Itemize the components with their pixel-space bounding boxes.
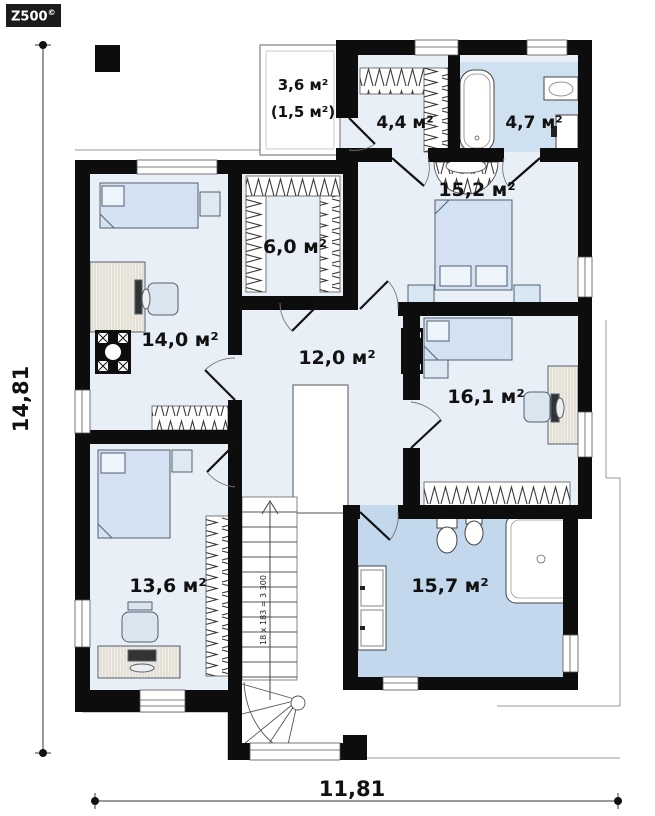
floor-plan-page: Z500© bbox=[0, 0, 655, 816]
label-bedroom-1: 15,2 м² bbox=[438, 179, 515, 201]
vent-shaft-bedroom-2 bbox=[95, 330, 131, 374]
dimension-height-label: 14,81 bbox=[9, 366, 33, 432]
bidet bbox=[465, 517, 483, 545]
window bbox=[527, 40, 567, 55]
bedroom-2-closet bbox=[152, 406, 228, 430]
stair-void-opening bbox=[293, 385, 348, 513]
window bbox=[383, 677, 418, 690]
window bbox=[578, 257, 592, 297]
label-bedroom-3: 16,1 м² bbox=[447, 386, 524, 408]
label-bathroom-large: 15,7 м² bbox=[411, 575, 488, 597]
dimension-width-label: 11,81 bbox=[319, 777, 385, 801]
room-attic-space-floor bbox=[260, 45, 340, 155]
bedroom-3-closet bbox=[424, 482, 570, 506]
window bbox=[140, 690, 185, 712]
window bbox=[578, 412, 592, 457]
double-washbasin bbox=[358, 566, 386, 650]
label-closet: 4,4 м² bbox=[376, 113, 433, 133]
window bbox=[250, 743, 340, 760]
label-bathroom-small: 4,7 м² bbox=[505, 113, 562, 133]
window bbox=[75, 390, 90, 433]
dimension-width: 11,81 bbox=[91, 777, 622, 809]
label-attic-space: 3,6 м² bbox=[278, 76, 329, 94]
window bbox=[415, 40, 458, 55]
dimension-height: 14,81 bbox=[9, 41, 51, 757]
label-hall: 12,0 м² bbox=[298, 347, 375, 369]
label-attic-reduced: (1,5 м²) bbox=[271, 103, 335, 121]
toilet-large-bath bbox=[437, 518, 457, 553]
floor-plan-drawing: 18 x 183 = 3 300 bbox=[0, 0, 655, 816]
window bbox=[137, 160, 217, 174]
bathtub bbox=[460, 70, 494, 152]
label-wardrobe: 6,0 м² bbox=[263, 236, 327, 258]
label-bedroom-2: 14,0 м² bbox=[141, 329, 218, 351]
window bbox=[563, 635, 578, 672]
chimney-block bbox=[95, 45, 120, 72]
window bbox=[75, 600, 90, 647]
label-bedroom-4: 13,6 м² bbox=[129, 575, 206, 597]
stair-note: 18 x 183 = 3 300 bbox=[259, 575, 268, 645]
washbasin-small-bath bbox=[544, 77, 578, 100]
